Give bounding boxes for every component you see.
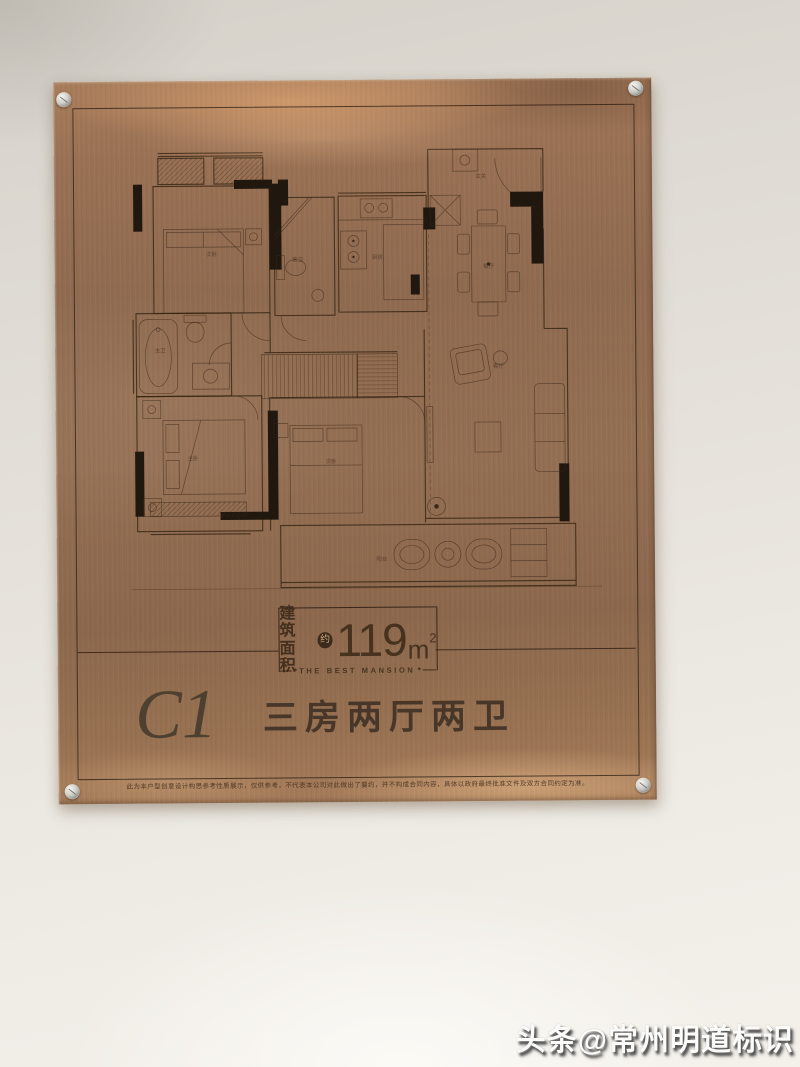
room-label: 次卧 bbox=[326, 457, 338, 465]
area-label-line1: 建筑 bbox=[279, 605, 314, 640]
area-unit: m bbox=[408, 636, 430, 662]
area-value: 119 m 2 bbox=[336, 616, 437, 663]
tagline-rule-left bbox=[279, 670, 292, 671]
tagline-text: THE BEST MANSION bbox=[299, 665, 415, 675]
room-label: 客厅 bbox=[493, 362, 505, 370]
unit-type-label: 三房两厅两卫 bbox=[263, 687, 515, 740]
area-box: 建筑 面积 约 119 m 2 bbox=[278, 606, 437, 671]
corner-screw-bottom-right bbox=[636, 778, 651, 793]
corner-screw-bottom-left bbox=[65, 784, 80, 799]
corner-screw-top-left bbox=[56, 92, 71, 107]
room-label: 主卧 bbox=[188, 454, 200, 462]
wall-background: 次卧 客卫 厨房 玄关 餐厅 主卫 主卧 次卧 客厅 阳台 建筑 面积 约 bbox=[0, 0, 800, 1067]
room-label: 阳台 bbox=[376, 555, 388, 563]
unit-code: C1 bbox=[135, 680, 217, 751]
tagline-bullet-right: ● bbox=[417, 666, 421, 672]
watermark: 头条@常州明道标识 bbox=[516, 1015, 794, 1059]
room-label: 主卫 bbox=[155, 346, 167, 354]
floor-plan-drawing: 次卧 客卫 厨房 玄关 餐厅 主卫 主卧 次卧 客厅 阳台 bbox=[129, 133, 603, 592]
room-label: 次卧 bbox=[206, 250, 218, 258]
tagline-bullet-left: ● bbox=[294, 667, 298, 673]
tagline-rule-right bbox=[423, 669, 436, 670]
corner-screw-top-right bbox=[628, 81, 643, 96]
unit-row: C1 三房两厅两卫 bbox=[77, 674, 638, 754]
room-label: 客卫 bbox=[292, 255, 304, 263]
room-label: 玄关 bbox=[475, 172, 487, 180]
area-number: 119 bbox=[336, 616, 407, 663]
room-label: 餐厅 bbox=[483, 262, 495, 270]
floor-plan-plaque: 次卧 客卫 厨房 玄关 餐厅 主卫 主卧 次卧 客厅 阳台 建筑 面积 约 bbox=[53, 78, 657, 805]
approx-badge: 约 bbox=[318, 632, 333, 648]
room-label: 厨房 bbox=[372, 253, 384, 261]
area-exponent: 2 bbox=[429, 631, 436, 644]
